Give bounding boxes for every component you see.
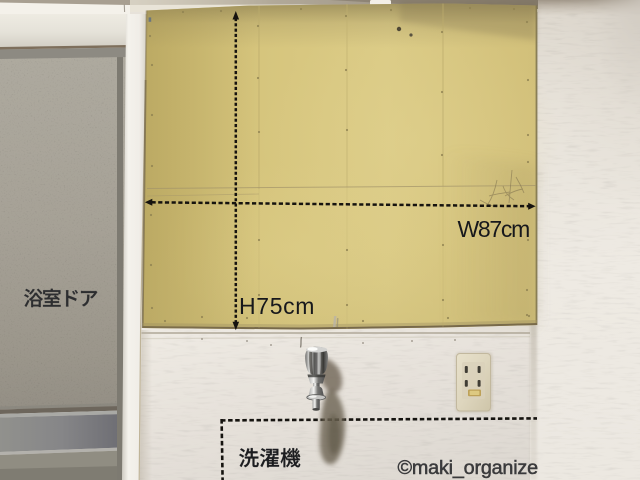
svg-text:W87cm: W87cm	[458, 216, 530, 242]
svg-text:H75cm: H75cm	[239, 293, 315, 319]
svg-text:©maki_organize: ©maki_organize	[398, 457, 539, 479]
